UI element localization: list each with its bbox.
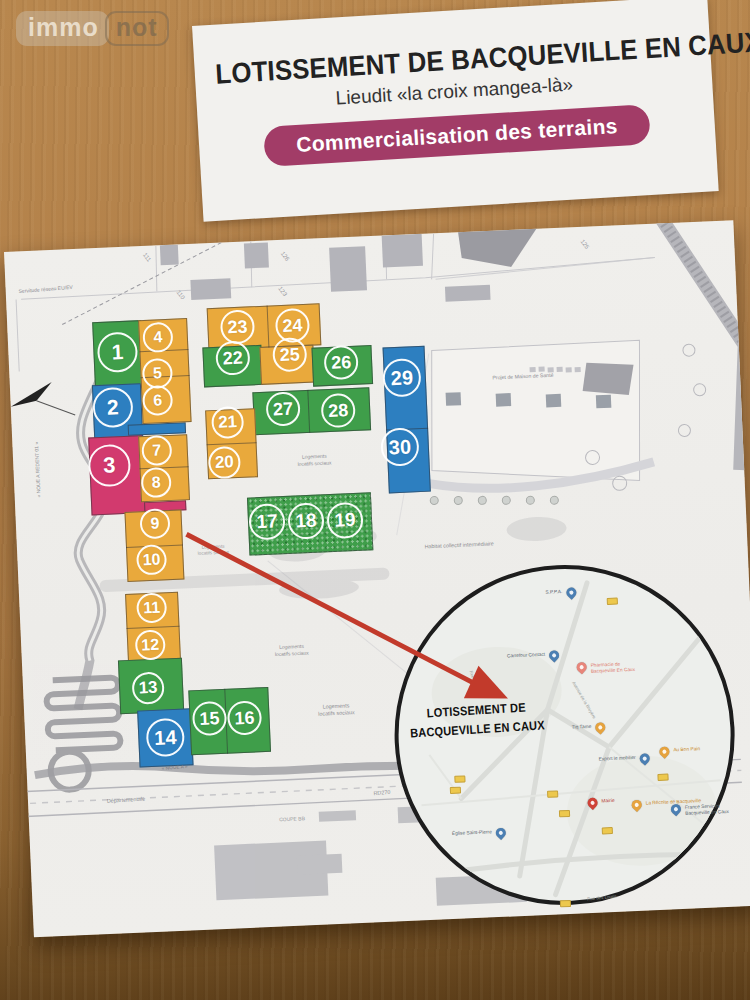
immonot-logo-not: not [105,11,169,46]
immonot-logo-immo: immo [16,11,109,46]
commercialisation-banner: Commercialisation des terrains [263,104,650,167]
photo-of-plan-on-desk: { "watermark": {"part1": "immo", "part2"… [0,0,750,1000]
immonot-watermark: immo not [16,11,169,46]
site-plan-sheet: 1234567891011121314151617181920212223242… [4,220,750,937]
red-arrow [4,220,750,937]
flyer-sheet: LOTISSEMENT DE BACQUEVILLE EN CAUX Lieud… [192,0,719,222]
